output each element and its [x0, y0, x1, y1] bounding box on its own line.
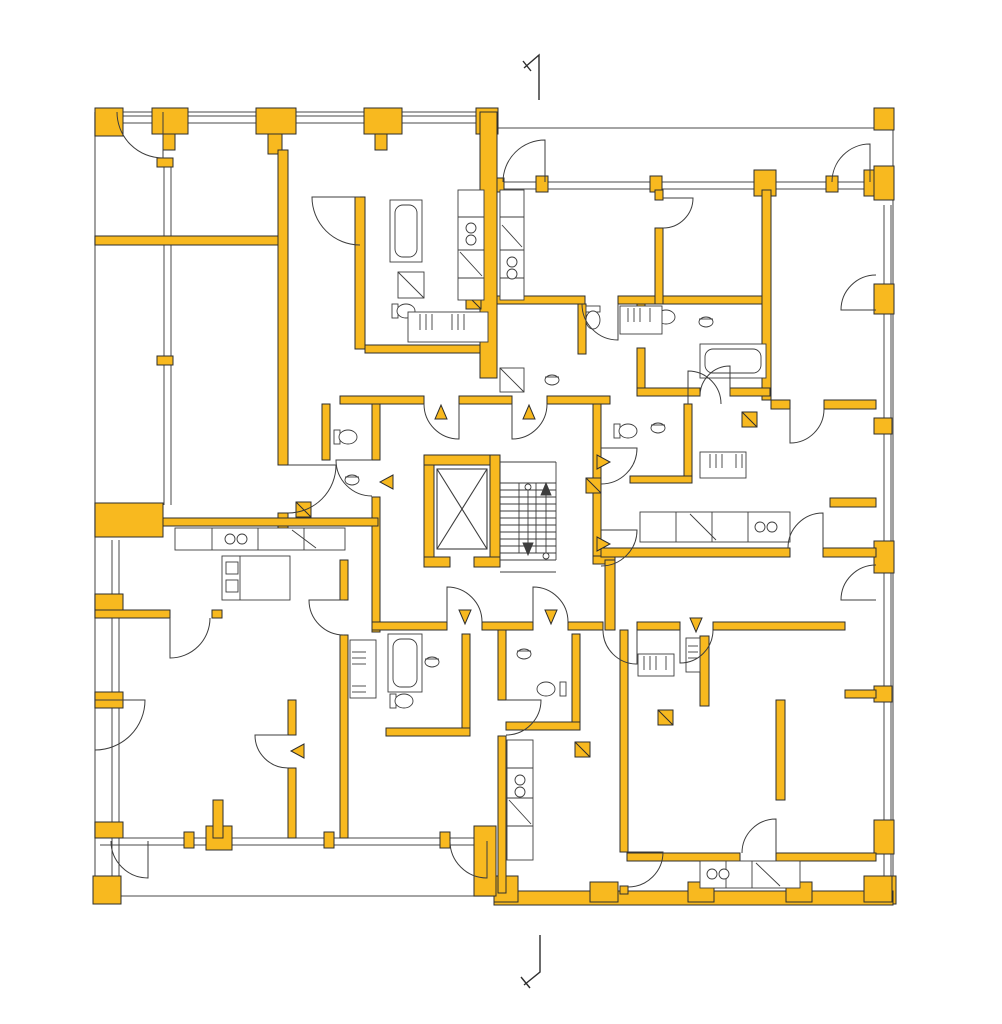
- interior-walls-shape: [498, 736, 506, 893]
- interior-walls-shape: [386, 728, 470, 736]
- interior-walls-shape: [620, 886, 628, 894]
- interior-walls-shape: [278, 150, 288, 465]
- wardrobe: [686, 638, 700, 672]
- bathroom-fixtures-shape: [619, 424, 637, 438]
- interior-walls-shape: [474, 557, 500, 567]
- pillow: [226, 580, 238, 592]
- doors-shape: [255, 735, 288, 768]
- structural-columns-shape: [590, 882, 618, 902]
- interior-walls-shape: [340, 396, 424, 404]
- interior-walls-shape: [572, 634, 580, 726]
- doors-shape: [841, 565, 876, 600]
- kitchen-counter: [507, 740, 533, 860]
- interior-walls-shape: [482, 622, 533, 630]
- interior-walls-shape: [340, 635, 348, 838]
- floor-plan-page: [0, 0, 1002, 1024]
- kitchen-counter: [175, 528, 345, 550]
- sink: [699, 317, 713, 327]
- interior-walls-shape: [830, 498, 876, 507]
- section-cut-bottom: [524, 935, 540, 985]
- interior-walls-shape: [824, 400, 876, 409]
- structural-columns-shape: [95, 822, 123, 838]
- pillow: [226, 562, 238, 574]
- interior-walls-shape: [618, 296, 767, 304]
- structural-columns-shape: [157, 158, 173, 167]
- entry-triangle-down: [545, 610, 557, 624]
- kitchen-fixtures-shape: [515, 787, 525, 797]
- interior-walls-shape: [498, 630, 506, 700]
- doors-shape: [288, 465, 336, 513]
- interior-walls-shape: [372, 622, 447, 630]
- staircase-shape: [543, 553, 549, 559]
- kitchen-fixtures-shape: [466, 235, 476, 245]
- interior-walls-shape: [637, 622, 680, 630]
- entry-triangle-up: [435, 405, 447, 419]
- doors-shape: [841, 275, 876, 310]
- structural-columns-shape: [157, 356, 173, 365]
- interior-walls-shape: [355, 197, 365, 349]
- structural-columns-shape: [864, 876, 892, 902]
- bathroom-fixtures-shape: [586, 311, 600, 329]
- interior-walls-shape: [627, 853, 740, 861]
- kitchen-fixtures-shape: [507, 269, 517, 279]
- kitchen-fixtures-shape: [707, 869, 717, 879]
- staircase: [500, 462, 556, 572]
- structural-columns-shape: [375, 134, 387, 150]
- interior-walls-shape: [823, 548, 876, 557]
- doors-shape: [742, 819, 776, 853]
- bathroom-fixtures-shape: [705, 349, 761, 373]
- kitchen-fixtures-shape: [719, 869, 729, 879]
- interior-walls-shape: [288, 768, 296, 838]
- structural-columns-shape: [95, 108, 123, 136]
- doors-shape: [790, 409, 824, 443]
- section-markers-shape: [521, 977, 530, 988]
- interior-walls-shape: [506, 722, 580, 730]
- interior-walls-shape: [776, 853, 876, 861]
- interior-walls-shape: [213, 800, 223, 838]
- interior-walls-shape: [212, 610, 222, 618]
- structural-columns-shape: [163, 134, 175, 150]
- kitchen-fixtures-shape: [767, 522, 777, 532]
- bathroom-fixtures-shape: [537, 682, 555, 696]
- kitchen-fixtures-shape: [466, 223, 476, 233]
- interior-walls-shape: [620, 630, 628, 852]
- structural-columns-shape: [874, 686, 892, 702]
- wardrobe: [620, 306, 662, 334]
- kitchen-fixtures-shape: [515, 775, 525, 785]
- interior-walls-shape: [372, 497, 380, 632]
- doors-shape: [309, 600, 344, 635]
- interior-walls-shape: [365, 345, 480, 353]
- toilet: [560, 682, 566, 696]
- staircase-shape: [525, 484, 531, 490]
- stair-up-arrow: [541, 483, 551, 495]
- section-cut-top: [524, 55, 539, 100]
- entry-triangle-up: [523, 405, 535, 419]
- entry-triangle-down: [690, 618, 702, 632]
- structural-columns-shape: [474, 826, 496, 896]
- bathroom-fixtures-shape: [395, 694, 413, 708]
- interior-walls-shape: [578, 304, 586, 354]
- interior-walls-shape: [95, 610, 170, 618]
- sink: [651, 423, 665, 433]
- entry-triangle-down: [459, 610, 471, 624]
- structural-columns-shape: [95, 594, 123, 610]
- sink: [517, 649, 531, 659]
- doors-shape: [663, 198, 693, 228]
- elevator: [437, 469, 487, 549]
- structural-columns-shape: [152, 108, 188, 134]
- interior-walls-shape: [372, 404, 380, 460]
- entry-triangle-right: [597, 455, 610, 469]
- structural-columns-shape: [93, 876, 121, 904]
- interior-walls-shape: [845, 690, 876, 698]
- sink: [425, 657, 439, 667]
- interior-walls-shape: [459, 396, 512, 404]
- interior-walls-shape: [462, 634, 470, 734]
- interior-walls-shape: [490, 455, 500, 567]
- interior-walls-shape: [95, 236, 278, 245]
- interior-walls-shape: [730, 388, 770, 396]
- wardrobe: [350, 640, 376, 698]
- interior-walls-shape: [568, 622, 603, 630]
- interior-walls-shape: [637, 348, 645, 388]
- structural-columns-shape: [874, 541, 894, 573]
- structural-columns-shape: [874, 284, 894, 314]
- sink: [545, 375, 559, 385]
- doors-shape: [111, 841, 148, 878]
- doors-shape: [312, 197, 360, 245]
- kitchen-fixtures-shape: [225, 534, 235, 544]
- kitchen-fixtures-shape: [237, 534, 247, 544]
- structural-columns-shape: [874, 108, 894, 130]
- interior-walls-shape: [163, 518, 378, 526]
- doors-shape: [788, 513, 823, 548]
- bathroom-fixtures-shape: [395, 205, 417, 257]
- structural-columns-shape: [184, 832, 194, 848]
- entry-triangle-left: [291, 744, 304, 758]
- interior-walls: [95, 112, 876, 894]
- structural-columns-shape: [95, 503, 163, 537]
- structural-columns-shape: [324, 832, 334, 848]
- interior-walls-shape: [424, 455, 500, 465]
- floor-plan-svg: [0, 0, 1002, 1024]
- structural-columns-shape: [874, 418, 892, 434]
- interior-walls-shape: [288, 700, 296, 735]
- interior-walls-shape: [713, 622, 845, 630]
- interior-walls-shape: [322, 404, 330, 460]
- structural-columns-shape: [364, 108, 402, 134]
- structural-columns-shape: [256, 108, 296, 134]
- interior-walls-shape: [637, 388, 700, 396]
- interior-walls-shape: [684, 404, 692, 480]
- interior-walls-shape: [700, 636, 709, 706]
- interior-walls-shape: [771, 400, 790, 409]
- bathroom-fixtures-shape: [339, 430, 357, 444]
- sink: [345, 475, 359, 485]
- interior-walls-shape: [424, 557, 450, 567]
- interior-walls-shape: [776, 700, 785, 800]
- entry-triangle-left: [380, 475, 393, 489]
- interior-walls-shape: [655, 228, 663, 304]
- interior-walls-shape: [655, 190, 663, 200]
- interior-walls-shape: [630, 476, 692, 483]
- doors-shape: [170, 618, 210, 658]
- structural-columns-shape: [874, 166, 894, 200]
- interior-walls-shape: [547, 396, 610, 404]
- kitchen-fixtures-shape: [755, 522, 765, 532]
- kitchen-fixtures-shape: [507, 257, 517, 267]
- interior-walls-shape: [605, 560, 615, 630]
- structural-columns-shape: [874, 820, 894, 854]
- interior-walls-shape: [340, 560, 348, 600]
- wardrobe: [700, 452, 746, 478]
- structural-columns-shape: [536, 176, 548, 192]
- bathroom-fixtures-shape: [393, 639, 417, 687]
- structural-columns-shape: [440, 832, 450, 848]
- interior-walls-shape: [424, 455, 434, 567]
